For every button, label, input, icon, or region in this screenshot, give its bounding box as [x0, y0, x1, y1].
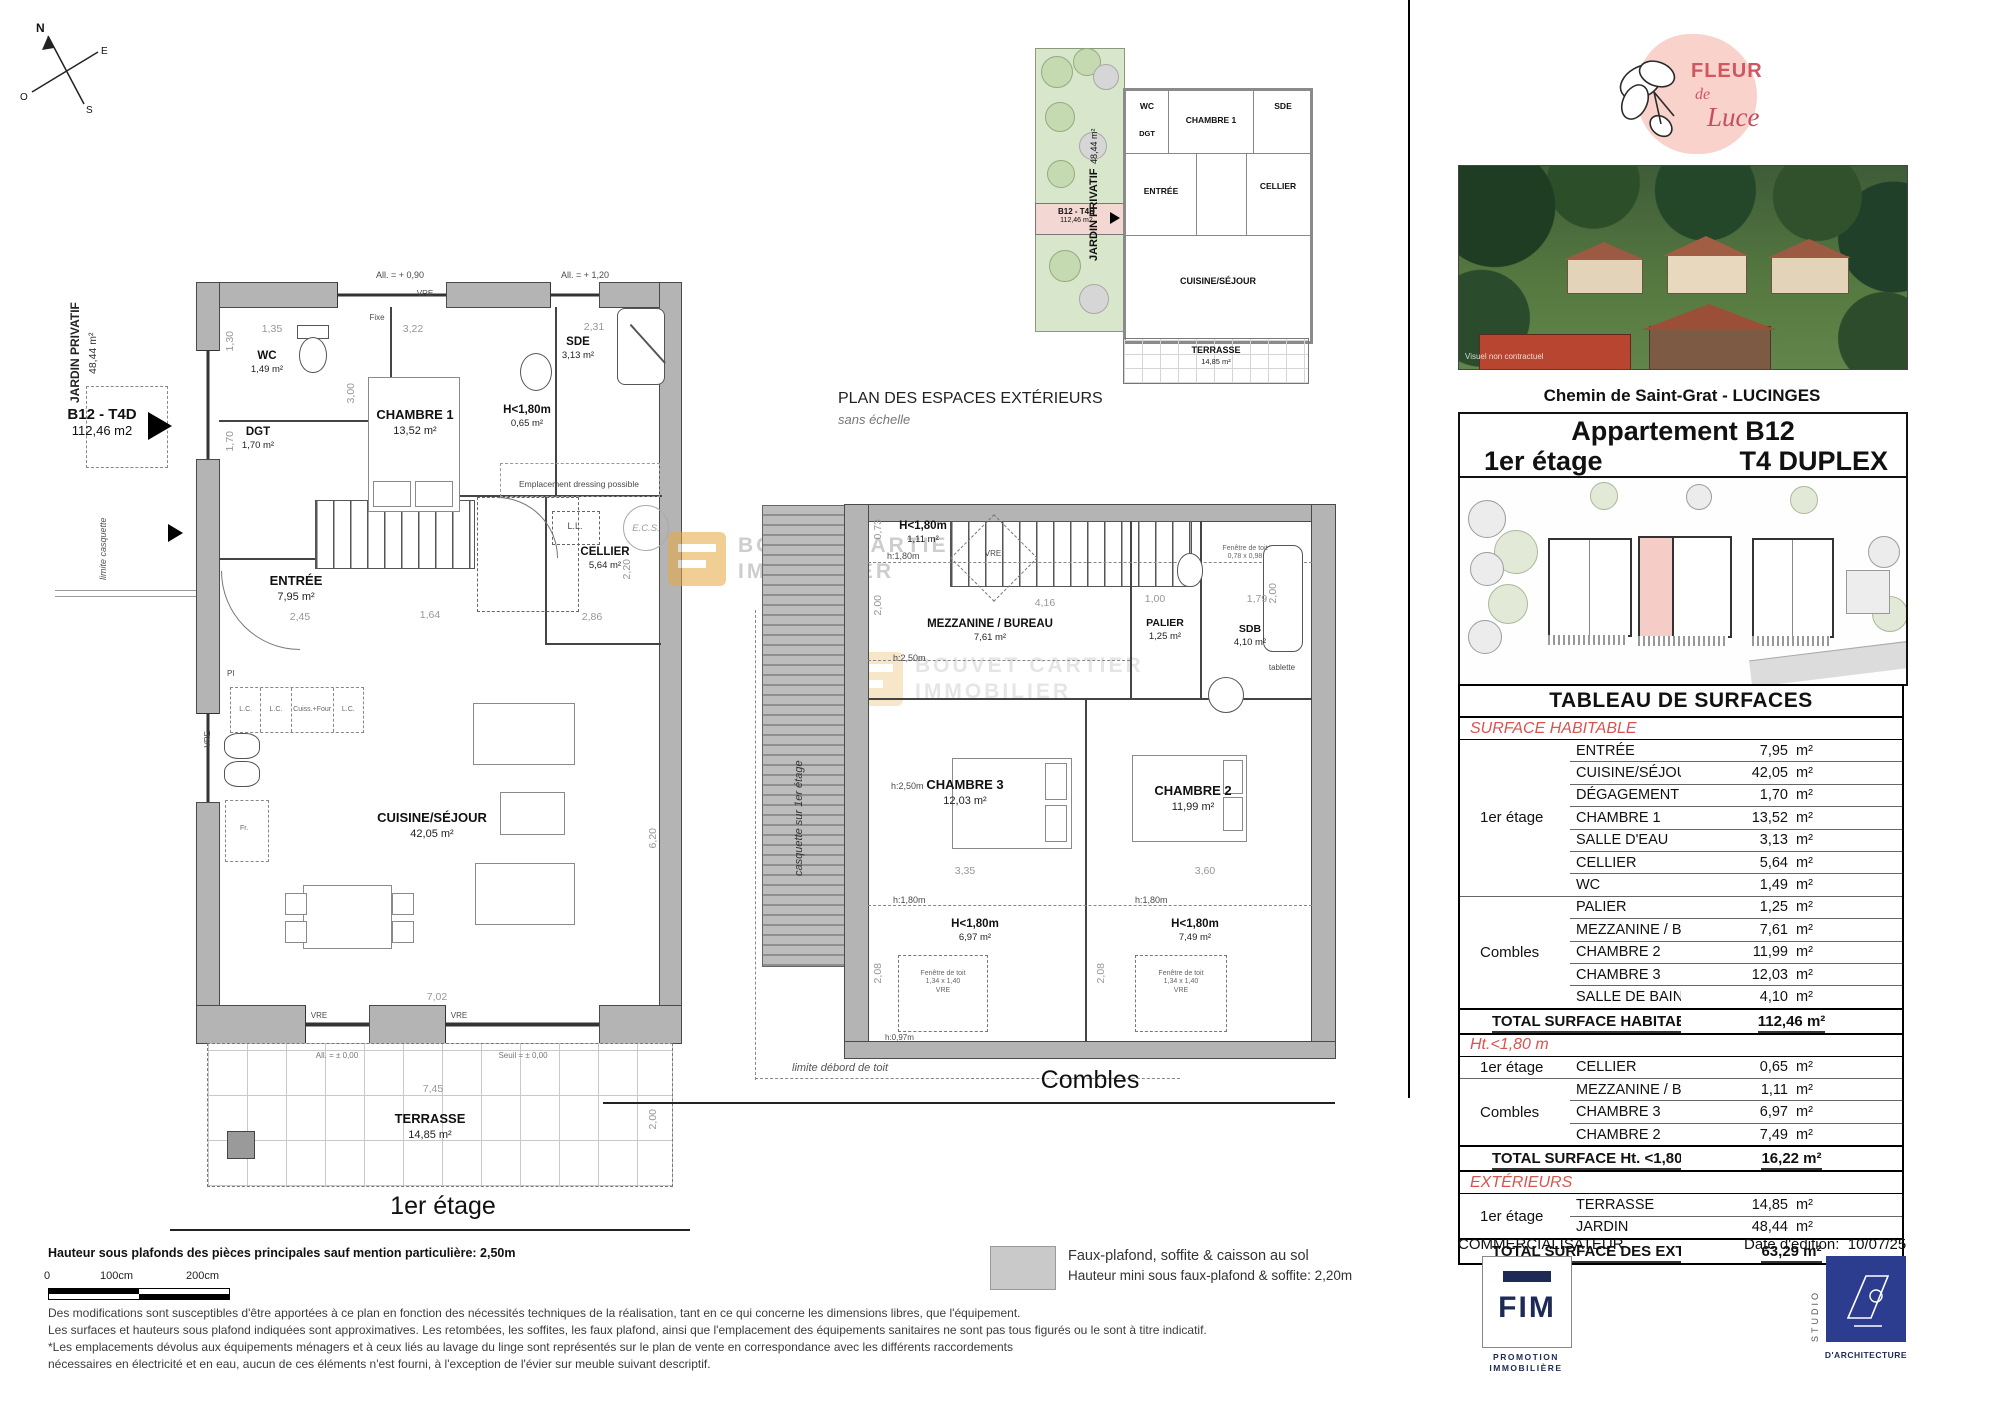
- vre-note: VRE: [203, 731, 212, 747]
- sofa-2: [475, 863, 575, 925]
- partition: [1130, 521, 1132, 700]
- roof-window-text: Fenêtre de toit 1,34 x 1,40 VRE: [899, 970, 987, 995]
- dim: 2,08: [1095, 963, 1107, 983]
- roof-window-ch3: Fenêtre de toit 1,34 x 1,40 VRE: [898, 955, 988, 1032]
- room-h180-ch2: H<1,80m7,49 m²: [1171, 917, 1219, 944]
- floor1-caption: 1er étage: [390, 1192, 496, 1221]
- h180-note: h:1,80m: [893, 895, 926, 905]
- room-chambre3: CHAMBRE 312,03 m²: [926, 777, 1003, 808]
- dim: 1,64: [420, 609, 440, 621]
- title-block: Appartement B12 1er étage T4 DUPLEX: [1458, 412, 1908, 480]
- site-line: [1792, 540, 1793, 636]
- site-terrace-hatch: [1548, 635, 1628, 645]
- combles-plan: VRE Fenêtre de toit 1,34 x 1,40 VRE: [845, 505, 1335, 1060]
- row-value: 5,64: [1681, 851, 1792, 873]
- total-value: 112,46 m²: [1681, 1009, 1903, 1034]
- h180-note: h:1,80m: [1135, 895, 1168, 905]
- casquette-strip: casquette sur 1er étage: [762, 505, 847, 967]
- floor-cell: Combles: [1459, 1079, 1570, 1147]
- column-divider: [1408, 0, 1410, 1098]
- row-unit: m²: [1792, 986, 1903, 1009]
- floor-cell: Combles: [1459, 896, 1570, 1008]
- row-label: ENTRÉE: [1570, 740, 1681, 762]
- tree-icon: [1041, 56, 1073, 88]
- roof-limit-line-v: [755, 610, 756, 1080]
- svg-text:E: E: [101, 46, 108, 57]
- mini-line: [1126, 153, 1310, 154]
- row-unit: m²: [1792, 1123, 1903, 1146]
- row-label: TERRASSE: [1570, 1194, 1681, 1216]
- fim-letters: FIM: [1483, 1291, 1571, 1325]
- combles-caption: Combles: [1041, 1066, 1140, 1095]
- vre-note: VRE: [311, 1011, 327, 1020]
- total-label: TOTAL SURFACE HABITABLE: [1459, 1009, 1681, 1034]
- sdb-toilet: [1177, 553, 1203, 587]
- row-label: CELLIER: [1570, 851, 1681, 873]
- ceiling-height-note: Hauteur sous plafonds des pièces princip…: [48, 1246, 516, 1260]
- photo-roof: [1663, 236, 1749, 256]
- terrace-pillar: [227, 1131, 255, 1159]
- tree-icon: [1468, 500, 1506, 538]
- dim: 2,08: [872, 963, 884, 983]
- site-building: [1548, 538, 1632, 637]
- row-label: MEZZANINE / BUREAU: [1570, 1079, 1681, 1101]
- row-label: CHAMBRE 2: [1570, 1123, 1681, 1146]
- surface-table-title: TABLEAU DE SURFACES: [1459, 685, 1903, 717]
- room-mezzanine: MEZZANINE / BUREAU7,61 m²: [927, 617, 1053, 644]
- row-value: 4,10: [1681, 986, 1792, 1009]
- row-value: 11,99: [1681, 941, 1792, 963]
- row-label: MEZZANINE / BUREAU: [1570, 919, 1681, 941]
- room-dgt: DGT1,70 m²: [242, 425, 274, 452]
- site-terrace-hatch: [1638, 636, 1728, 646]
- site-patio: [1846, 570, 1890, 614]
- studio-logo-icon: [1826, 1256, 1906, 1342]
- entry-door-arrow-icon: [168, 524, 183, 542]
- studio-caption: D'ARCHITECTURE: [1816, 1350, 1916, 1360]
- fridge: Fr.: [225, 800, 269, 862]
- dim: 2,31: [584, 321, 604, 333]
- wall: [660, 283, 681, 1031]
- section-heading: EXTÉRIEURS: [1459, 1171, 1903, 1194]
- room-wc: WC1,49 m²: [251, 349, 283, 376]
- dim: 0,73: [872, 519, 884, 539]
- row-unit: m²: [1792, 829, 1903, 851]
- row-label: CHAMBRE 3: [1570, 1101, 1681, 1123]
- limite-casquette-label: limite casquette: [98, 470, 108, 580]
- pillow: [373, 481, 411, 507]
- mini-room-cellier: CELLIER: [1260, 181, 1296, 192]
- wall: [845, 1042, 1335, 1058]
- row-label: DÉGAGEMENT: [1570, 784, 1681, 806]
- mini-room-terrasse: TERRASSE14,85 m²: [1191, 345, 1240, 366]
- shower-drain-line: [630, 324, 666, 364]
- row-unit: m²: [1792, 963, 1903, 985]
- partition: [219, 420, 390, 422]
- logo-word-fleur: FLEUR: [1691, 60, 1763, 83]
- dining-table: [303, 885, 392, 949]
- room-h180-top: H<1,80m1,11 m²: [899, 519, 947, 546]
- fim-caption: PROMOTION IMMOBILIÈRE: [1468, 1352, 1584, 1374]
- site-building: [1672, 536, 1732, 638]
- tree-icon: [1047, 160, 1075, 188]
- window: [197, 713, 219, 805]
- dim: 2,45: [290, 611, 310, 623]
- kitchen-cabinets: L.C. L.C. Cuiss.+Four L.C.: [230, 687, 364, 733]
- commercialisateur-label: COMMERCIALISATEUR: [1458, 1236, 1624, 1253]
- row-label: CHAMBRE 1: [1570, 807, 1681, 829]
- row-unit: m²: [1792, 740, 1903, 762]
- h180-note: h:1,80m: [887, 551, 920, 561]
- floor1-plan: Emplacement dressing possible L.L. E.C.S…: [197, 283, 689, 1188]
- seuil-note: Seuil = ± 0,00: [498, 1051, 547, 1060]
- wall: [600, 283, 662, 307]
- mini-line: [1196, 153, 1197, 235]
- cabinet-lc3: L.C.: [334, 688, 363, 732]
- room-sdb: SDB4,10 m²: [1234, 623, 1266, 649]
- dim: 4,16: [1035, 597, 1055, 609]
- dim: 2,00: [1267, 583, 1279, 603]
- tree-icon: [1049, 250, 1081, 282]
- scale-label-0: 0: [44, 1270, 50, 1282]
- mini-line: [1126, 235, 1310, 236]
- washer-label: L.L.: [567, 521, 582, 531]
- row-unit: m²: [1792, 1079, 1903, 1101]
- dim: 3,60: [1195, 865, 1215, 877]
- site-unit-highlight: [1638, 536, 1676, 638]
- tree-icon: [1470, 552, 1504, 586]
- exterior-plan-title: PLAN DES ESPACES EXTÉRIEURS: [838, 390, 1103, 408]
- tree-icon: [1079, 284, 1109, 314]
- row-label: CHAMBRE 2: [1570, 941, 1681, 963]
- apartment-type: T4 DUPLEX: [1739, 446, 1888, 477]
- dim: 1,79: [1247, 593, 1267, 605]
- wall: [1312, 505, 1335, 1058]
- floor-cell: 1er étage: [1459, 740, 1570, 897]
- room-cuisine: CUISINE/SÉJOUR42,05 m²: [377, 810, 487, 841]
- studio-vertical-label: STUDIO: [1810, 1260, 1820, 1342]
- wall: [197, 460, 219, 713]
- row-unit: m²: [1792, 784, 1903, 806]
- tree-icon: [1488, 584, 1528, 624]
- row-label: WC: [1570, 874, 1681, 896]
- caption-underline: [170, 1229, 690, 1231]
- floorplan-sheet: N E S O JARDIN PRIVATIF 48,44 m² B12 - T…: [0, 0, 2000, 1413]
- vre-note: VRE: [451, 1011, 467, 1020]
- mini-line: [1253, 91, 1254, 153]
- allege-note: All. = + 1,20: [561, 270, 609, 280]
- dim: 3,00: [345, 383, 357, 403]
- dim: 1,00: [1145, 593, 1165, 605]
- pillow: [415, 481, 453, 507]
- svg-text:O: O: [20, 92, 28, 103]
- kitchen-sink-2: [224, 761, 260, 787]
- legend-swatch: [990, 1246, 1056, 1290]
- dim: 1,70: [224, 431, 236, 451]
- mini-room-cuisine: CUISINE/SÉJOUR: [1180, 276, 1256, 288]
- fim-logo: FIM: [1482, 1256, 1572, 1348]
- vre-note: VRE: [985, 549, 1001, 558]
- dim: 2,00: [647, 1109, 659, 1129]
- sofa-1: [473, 703, 575, 765]
- floor-cell: 1er étage: [1459, 1056, 1570, 1078]
- disclaimer-line1: Des modifications sont susceptibles d'êt…: [48, 1306, 1021, 1320]
- row-value: 13,52: [1681, 807, 1792, 829]
- mini-room-sde: SDE: [1274, 101, 1291, 112]
- svg-text:N: N: [36, 21, 45, 35]
- chair: [285, 921, 307, 943]
- fixe-note: Fixe: [369, 313, 384, 322]
- tree-icon: [1045, 102, 1075, 132]
- garden: [1035, 48, 1125, 332]
- room-palier: PALIER1,25 m²: [1146, 617, 1184, 643]
- room-chambre1: CHAMBRE 113,52 m²: [376, 407, 453, 438]
- tree-icon: [1590, 482, 1618, 510]
- tree-icon: [1790, 486, 1818, 514]
- chair: [285, 893, 307, 915]
- entry-strip: B12 - T4D 112,46 m2: [1035, 203, 1125, 235]
- exterior-plan-subtitle: sans échelle: [838, 412, 910, 427]
- scale-seg: [139, 1289, 229, 1299]
- mini-room-wc: WC: [1140, 101, 1154, 112]
- row-label: CUISINE/SÉJOUR: [1570, 762, 1681, 784]
- row-unit: m²: [1792, 1194, 1903, 1216]
- row-label: SALLE D'EAU: [1570, 829, 1681, 851]
- row-value: 6,97: [1681, 1101, 1792, 1123]
- row-value: 1,25: [1681, 896, 1792, 918]
- watermark-logo-icon: [668, 532, 726, 586]
- total-value: 16,22 m²: [1681, 1146, 1903, 1171]
- apartment-floor: 1er étage: [1484, 446, 1603, 477]
- section-heading: Ht.<1,80 m: [1459, 1034, 1903, 1057]
- tree-icon: [1686, 484, 1712, 510]
- disclaimer-line2: Les surfaces et hauteurs sous plafond in…: [48, 1323, 1207, 1337]
- photo-roof: [1563, 242, 1645, 260]
- photo-disclaimer: Visuel non contractuel: [1465, 352, 1544, 361]
- tree-icon: [1093, 64, 1119, 90]
- entry-arrow-icon: [148, 412, 172, 440]
- compass-icon: N E S O: [18, 18, 110, 114]
- scale-bar: [48, 1288, 230, 1300]
- dim: 3,35: [955, 865, 975, 877]
- pi-label: PI: [227, 669, 235, 678]
- row-value: 1,70: [1681, 784, 1792, 806]
- legend-line1: Faux-plafond, soffite & caisson au sol: [1068, 1248, 1309, 1264]
- wall: [370, 1006, 445, 1043]
- height-line: [868, 562, 1312, 563]
- row-value: 1,11: [1681, 1079, 1792, 1101]
- disclaimer-line4: nécessaires en électricité et en eau, au…: [48, 1357, 711, 1371]
- chair: [392, 893, 414, 915]
- dim: 7,45: [423, 1083, 443, 1095]
- surface-table: TABLEAU DE SURFACES SURFACE HABITABLE 1e…: [1458, 684, 1904, 1265]
- wall: [197, 1006, 305, 1043]
- row-unit: m²: [1792, 896, 1903, 918]
- dim: 3,22: [403, 323, 423, 335]
- wall: [197, 283, 219, 350]
- brand-logo: FLEUR de Luce: [1595, 28, 1775, 168]
- casquette-edge-line: [55, 590, 213, 597]
- row-unit: m²: [1792, 874, 1903, 896]
- apartment-title: Appartement B12: [1460, 416, 1906, 447]
- unit-tag: B12 - T4D 112,46 m2: [50, 406, 154, 438]
- row-unit: m²: [1792, 762, 1903, 784]
- tree-icon: [1468, 620, 1502, 654]
- room-terrasse: TERRASSE14,85 m²: [395, 1111, 466, 1142]
- disclaimer-line3: *Les emplacements dévolus aux équipement…: [48, 1340, 1013, 1354]
- photo-house: [1567, 258, 1643, 294]
- wall: [215, 283, 337, 307]
- coffee-table: [500, 792, 565, 835]
- studio-logo: [1826, 1256, 1906, 1342]
- dim: 1,35: [262, 323, 282, 335]
- row-label: PALIER: [1570, 896, 1681, 918]
- partition: [1085, 700, 1087, 1042]
- dim: 7,02: [427, 991, 447, 1003]
- room-entree: ENTRÉE7,95 m²: [270, 573, 323, 604]
- mini-room-entree: ENTRÉE: [1144, 186, 1178, 197]
- room-sde: SDE3,13 m²: [562, 335, 594, 362]
- sdb-sink: [1208, 677, 1244, 713]
- tablette-note: tablette: [1269, 663, 1295, 672]
- partition: [545, 643, 661, 645]
- photo-house: [1771, 256, 1849, 294]
- total-label: TOTAL SURFACE Ht. <1,80 m: [1459, 1146, 1681, 1171]
- roof-window-small-text: Fenêtre de toit 0,78 x 0,98: [1217, 545, 1273, 562]
- mini-entry-arrow-icon: [1110, 212, 1120, 224]
- h250-note: h:2,50m: [891, 781, 924, 791]
- scale-seg: [49, 1289, 139, 1299]
- wall: [197, 803, 219, 1031]
- toilet-bowl: [299, 337, 327, 373]
- row-value: 0,65: [1681, 1056, 1792, 1078]
- dim: 1,30: [224, 331, 236, 351]
- room-chambre2: CHAMBRE 211,99 m²: [1154, 783, 1231, 814]
- wall: [447, 283, 550, 307]
- row-unit: m²: [1792, 807, 1903, 829]
- row-value: 3,13: [1681, 829, 1792, 851]
- flower-icon: [1599, 44, 1699, 149]
- partition: [1200, 521, 1202, 700]
- sde-sink: [520, 353, 552, 391]
- height-line: [868, 905, 1312, 906]
- photo-house: [1667, 254, 1747, 294]
- tree-icon: [1868, 536, 1900, 568]
- dim: 2,86: [582, 611, 602, 623]
- site-terrace-hatch: [1752, 636, 1830, 646]
- photo-foreground-house: [1649, 326, 1771, 370]
- address-line: Chemin de Saint-Grat - LUCINGES: [1458, 386, 1906, 406]
- fim-bar: [1503, 1271, 1551, 1282]
- mini-line: [1246, 153, 1247, 235]
- dim: 2,20: [621, 559, 633, 579]
- row-value: 7,95: [1681, 740, 1792, 762]
- fridge-label: Fr.: [240, 825, 248, 833]
- mini-unit: WC DGT CHAMBRE 1 SDE ENTRÉE CELLIER CUIS…: [1123, 88, 1313, 344]
- logo-word-luce: Luce: [1707, 102, 1759, 133]
- mini-line: [1168, 91, 1169, 153]
- mini-room-ch1: CHAMBRE 1: [1186, 115, 1237, 126]
- allege-note: All. = ± 0,00: [316, 1051, 358, 1060]
- h097-note: h:0,97m: [885, 1033, 914, 1042]
- row-value: 14,85: [1681, 1194, 1792, 1216]
- mini-jardin-label: JARDIN PRIVATIF 48,44 m²: [1085, 120, 1103, 270]
- wall: [600, 1006, 681, 1043]
- cabinet-lc1: L.C.: [231, 688, 261, 732]
- row-label: SALLE DE BAINS: [1570, 986, 1681, 1009]
- mini-room-dgt: DGT: [1139, 129, 1155, 139]
- scale-label-200: 200cm: [186, 1270, 219, 1282]
- site-line: [1589, 540, 1590, 635]
- room-h180-ch3: H<1,80m6,97 m²: [951, 917, 999, 944]
- project-photo: Visuel non contractuel: [1458, 165, 1908, 370]
- row-value: 7,61: [1681, 919, 1792, 941]
- vre-note: VRE: [417, 289, 433, 298]
- floor-cell: 1er étage: [1459, 1194, 1570, 1239]
- cabinet-lc2: L.C.: [261, 688, 291, 732]
- photo-roof: [1767, 239, 1851, 258]
- window: [550, 283, 602, 307]
- section-heading: SURFACE HABITABLE: [1459, 717, 1903, 740]
- row-unit: m²: [1792, 1056, 1903, 1078]
- kitchen-sink-1: [224, 733, 260, 759]
- legend-line2: Hauteur mini sous faux-plafond & soffite…: [1068, 1268, 1352, 1283]
- edition-date: Date d'édition: 10/07/25: [1744, 1236, 1906, 1253]
- roof-window-ch2: Fenêtre de toit 1,34 x 1,40 VRE: [1135, 955, 1227, 1032]
- partition: [868, 698, 1312, 700]
- wall: [845, 505, 868, 1058]
- caption-underline: [603, 1102, 1335, 1104]
- row-label: CELLIER: [1570, 1056, 1681, 1078]
- pillow: [1045, 763, 1067, 800]
- exterior-mini-plan: B12 - T4D 112,46 m2 WC DGT CHAMBRE 1 SDE…: [1035, 40, 1310, 385]
- dim: 2,00: [872, 595, 884, 615]
- row-unit: m²: [1792, 1101, 1903, 1123]
- cabinet-oven: Cuiss.+Four: [292, 688, 334, 732]
- row-value: 7,49: [1681, 1123, 1792, 1146]
- dressing-note: Emplacement dressing possible: [519, 479, 639, 489]
- allege-note: All. = + 0,90: [376, 270, 424, 280]
- site-road: [1749, 640, 1908, 686]
- shower: [617, 308, 665, 385]
- row-unit: m²: [1792, 941, 1903, 963]
- room-h180: H<1,80m0,65 m²: [503, 403, 551, 430]
- h250-note: h:2,50m: [893, 653, 926, 663]
- roof-limit-label: limite débord de toit: [792, 1062, 888, 1074]
- row-value: 12,03: [1681, 963, 1792, 985]
- row-unit: m²: [1792, 919, 1903, 941]
- site-building: [1752, 538, 1834, 638]
- mini-terrace: TERRASSE14,85 m²: [1123, 338, 1309, 384]
- pillow: [1045, 805, 1067, 842]
- dim: 6,20: [647, 828, 659, 848]
- chair: [392, 921, 414, 943]
- row-label: CHAMBRE 3: [1570, 963, 1681, 985]
- door-opening: [197, 350, 219, 462]
- row-unit: m²: [1792, 851, 1903, 873]
- row-value: 42,05: [1681, 762, 1792, 784]
- photo-foreground-roof: [1641, 304, 1777, 330]
- site-plan: [1458, 476, 1908, 686]
- svg-text:S: S: [86, 105, 93, 114]
- scale-label-100: 100cm: [100, 1270, 133, 1282]
- roof-window-text: Fenêtre de toit 1,34 x 1,40 VRE: [1136, 970, 1226, 995]
- casquette-label: casquette sur 1er étage: [793, 596, 805, 876]
- row-value: 1,49: [1681, 874, 1792, 896]
- water-heater: E.C.S.: [623, 505, 669, 551]
- window: [445, 1006, 602, 1043]
